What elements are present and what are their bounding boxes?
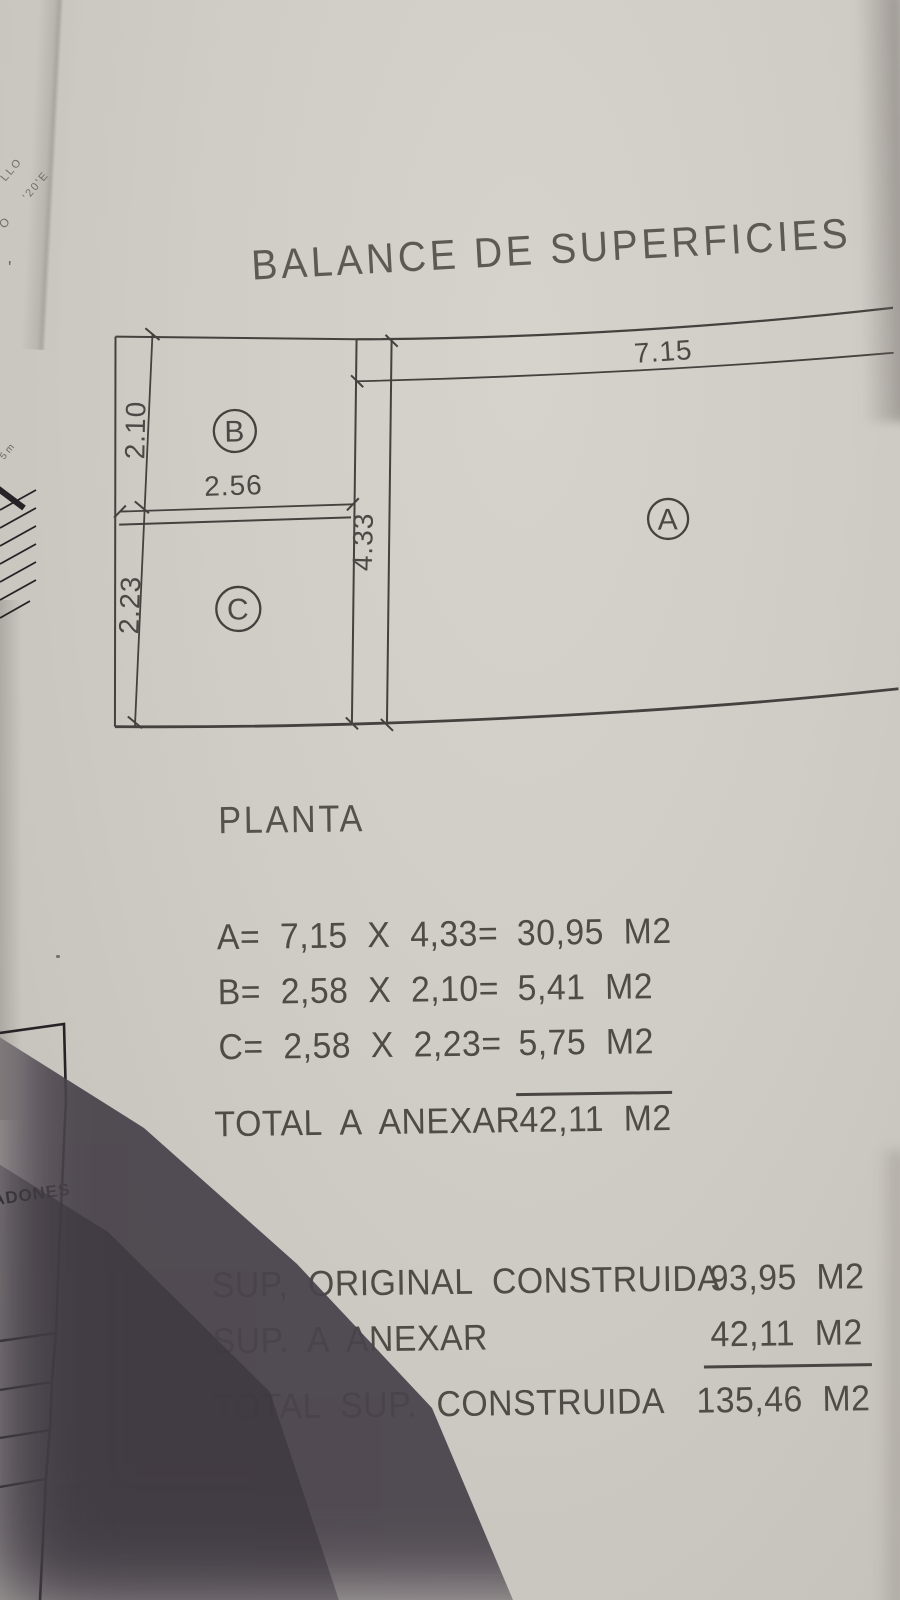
dim-line-715 — [357, 353, 894, 381]
photographed-document: BALANCE DE SUPERFICIES — [0, 0, 900, 1600]
right-edge-shading-bottom — [878, 1150, 900, 1600]
dim-height-a: 4.33 — [347, 512, 379, 571]
calc-formula-a: A= 7,15 X 4,33= — [217, 915, 499, 955]
dim-height-c: 2.23 — [113, 575, 146, 635]
bottom-boundary-line — [115, 689, 899, 728]
right-edge-shading-top — [856, 0, 900, 422]
calc-result-b: 5,41 M2 — [517, 968, 653, 1006]
hatch-line — [0, 526, 36, 546]
calc-total-row: TOTAL A ANEXAR 42,11 M2 — [214, 1102, 540, 1143]
room-c-label: C — [227, 593, 250, 626]
summary-value-original: 93,95 M2 — [709, 1258, 864, 1296]
calc-row-c: C= 2,58 X 2,23= 5,75 M2 — [218, 1025, 520, 1065]
calc-row-a: A= 7,15 X 4,33= 30,95 M2 — [217, 915, 517, 955]
left-dimension-line — [129, 334, 157, 726]
top-boundary-line — [356, 308, 893, 340]
dim-width-a: 7.15 — [633, 334, 693, 369]
margin-hatch-drawing: 5 m — [0, 438, 70, 628]
hatch-line — [0, 544, 36, 564]
room-divider-wall — [119, 517, 351, 524]
page-title: BALANCE DE SUPERFICIES — [250, 212, 852, 286]
plan-heading: PLANTA — [218, 800, 365, 840]
calc-total-label: TOTAL A ANEXAR — [214, 1102, 520, 1142]
room-a-label: A — [657, 503, 678, 536]
stamp-line2: '20'E — [21, 169, 52, 203]
calc-result-a: 30,95 M2 — [517, 913, 672, 951]
summary-value-total: 135,46 M2 — [696, 1380, 871, 1418]
hatch-line — [0, 601, 30, 618]
hatch-thick-line — [0, 487, 24, 508]
calc-total-value: 42,11 M2 — [519, 1100, 672, 1138]
stamp-line1: LLO — [0, 156, 25, 184]
hatch-line — [0, 562, 36, 582]
room-b-label: B — [224, 415, 245, 448]
hatch-label: 5 m — [0, 442, 17, 462]
summary-underline — [704, 1363, 872, 1368]
calc-row-b: B= 2,58 X 2,10= 5,41 M2 — [217, 970, 517, 1010]
floor-plan-drawing: B C A 2.10 2.23 2.56 4.33 7.15 — [93, 292, 899, 748]
calc-formula-c: C= 2,58 X 2,23= — [218, 1025, 502, 1065]
dim-line-256 — [120, 504, 353, 511]
dim-width-bc: 2.56 — [204, 469, 263, 502]
sum-overline — [516, 1091, 672, 1096]
hatch-line — [0, 580, 36, 600]
outer-left-wall — [109, 337, 120, 727]
small-ink-dot — [56, 955, 60, 958]
summary-value-anexar: 42,11 M2 — [710, 1314, 863, 1352]
hatch-line — [0, 508, 36, 528]
room-a-left-wall — [382, 341, 397, 725]
dim-height-b: 2.10 — [119, 400, 151, 459]
calc-formula-b: B= 2,58 X 2,10= — [217, 970, 499, 1010]
margin-apostrophe-mark: ' — [8, 258, 11, 279]
calc-result-c: 5,75 M2 — [518, 1023, 654, 1061]
